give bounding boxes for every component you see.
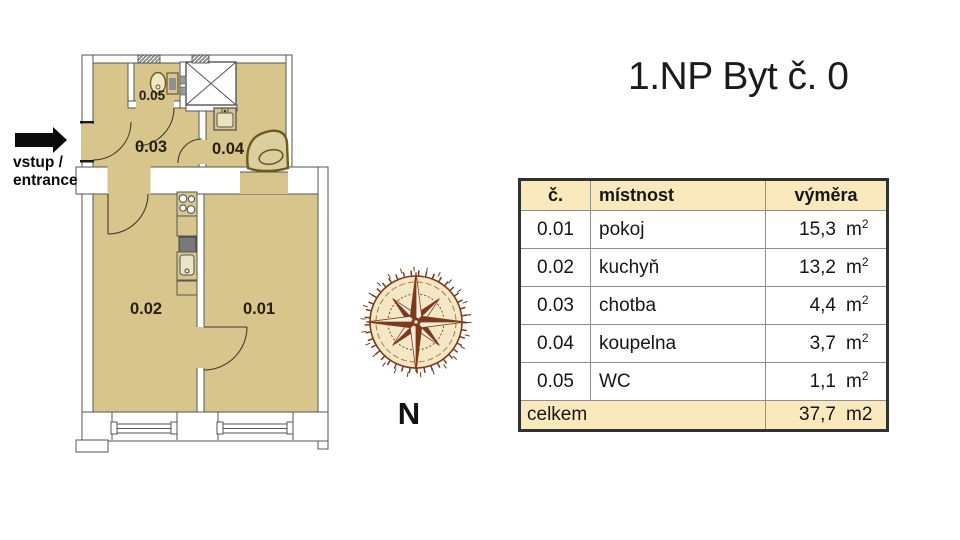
cell-no: 0.03 bbox=[520, 287, 591, 325]
room-002-label: 0.02 bbox=[130, 300, 162, 318]
compass-rose-icon bbox=[363, 269, 469, 375]
table-row: 0.03 chotba 4,4 m2 bbox=[520, 287, 888, 325]
area-unit: m2 bbox=[846, 219, 878, 241]
stove-icon bbox=[177, 192, 197, 216]
room-005-label: 0.05 bbox=[139, 88, 166, 103]
area-value: 3,7 bbox=[810, 333, 836, 355]
col-header-no: č. bbox=[520, 180, 591, 211]
page-title: 1.NP Byt č. 0 bbox=[628, 55, 888, 99]
sink-icon bbox=[214, 108, 236, 130]
cell-room: koupelna bbox=[591, 325, 766, 363]
area-value: 4,4 bbox=[810, 295, 836, 317]
table-header-row: č. místnost výměra bbox=[520, 180, 888, 211]
cell-area: 3,7 m2 bbox=[766, 325, 888, 363]
area-table: č. místnost výměra 0.01 pokoj 15,3 m2 0.… bbox=[518, 178, 889, 432]
table-row: 0.05 WC 1,1 m2 bbox=[520, 363, 888, 401]
total-value: 37,7 bbox=[799, 404, 836, 426]
cell-area: 4,4 m2 bbox=[766, 287, 888, 325]
cell-area: 13,2 m2 bbox=[766, 249, 888, 287]
entrance-arrow-icon bbox=[15, 127, 67, 153]
cell-room: pokoj bbox=[591, 211, 766, 249]
cell-no: 0.04 bbox=[520, 325, 591, 363]
table-row: 0.04 koupelna 3,7 m2 bbox=[520, 325, 888, 363]
elevator-icon bbox=[180, 62, 236, 105]
col-header-area: výměra bbox=[766, 180, 888, 211]
area-unit: m2 bbox=[846, 371, 878, 393]
area-unit: m2 bbox=[846, 295, 878, 317]
cell-no: 0.02 bbox=[520, 249, 591, 287]
cell-area: 1,1 m2 bbox=[766, 363, 888, 401]
entrance-label-line1: vstup / bbox=[13, 154, 64, 171]
window-icon bbox=[111, 422, 177, 434]
total-row: celkem 37,7 m2 bbox=[520, 401, 888, 431]
cell-room: chotba bbox=[591, 287, 766, 325]
total-unit: m2 bbox=[846, 404, 878, 426]
area-unit: m2 bbox=[846, 257, 878, 279]
entrance-marker: vstup / entrance bbox=[13, 127, 78, 189]
kitchen-sink-icon bbox=[177, 252, 197, 280]
room-004-label: 0.04 bbox=[212, 140, 245, 158]
cell-room: kuchyň bbox=[591, 249, 766, 287]
col-header-room: místnost bbox=[591, 180, 766, 211]
cell-no: 0.05 bbox=[520, 363, 591, 401]
oven-icon bbox=[179, 237, 196, 252]
total-label: celkem bbox=[520, 401, 766, 431]
table-row: 0.02 kuchyň 13,2 m2 bbox=[520, 249, 888, 287]
area-unit: m2 bbox=[846, 333, 878, 355]
area-value: 13,2 bbox=[799, 257, 836, 279]
room-001-label: 0.01 bbox=[243, 300, 275, 318]
kitchen-counter bbox=[177, 216, 197, 295]
area-value: 15,3 bbox=[799, 219, 836, 241]
cell-area: 15,3 m2 bbox=[766, 211, 888, 249]
cell-room: WC bbox=[591, 363, 766, 401]
cell-no: 0.01 bbox=[520, 211, 591, 249]
room-003-label: 0.03 bbox=[135, 138, 167, 156]
floor-plan: 0.05 0.03 0.04 0.02 0.01 vstup / entranc… bbox=[0, 0, 500, 540]
lower-rooms-floor bbox=[93, 194, 318, 412]
page: 0.05 0.03 0.04 0.02 0.01 vstup / entranc… bbox=[0, 0, 960, 540]
total-area: 37,7 m2 bbox=[766, 401, 888, 431]
window-icon bbox=[217, 422, 293, 434]
area-value: 1,1 bbox=[810, 371, 836, 393]
entrance-label-line2: entrance bbox=[13, 172, 78, 189]
table-row: 0.01 pokoj 15,3 m2 bbox=[520, 211, 888, 249]
north-label: N bbox=[398, 396, 420, 431]
